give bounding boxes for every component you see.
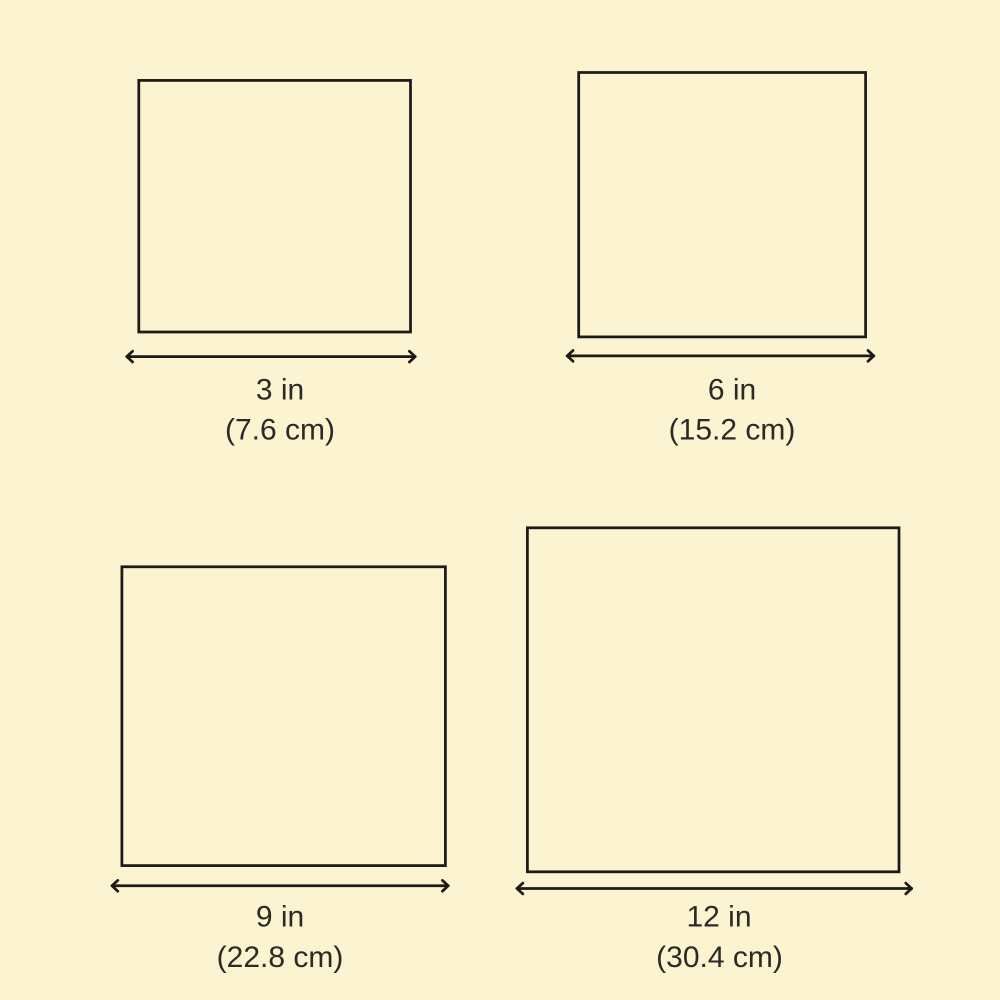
svg-text:6 in: 6 in [708,374,756,407]
svg-text:(15.2 cm): (15.2 cm) [669,414,796,447]
svg-text:(30.4 cm): (30.4 cm) [656,941,783,974]
svg-text:(7.6 cm): (7.6 cm) [225,414,335,447]
svg-text:12 in: 12 in [686,901,751,934]
svg-text:9 in: 9 in [256,901,304,934]
svg-text:3 in: 3 in [256,374,304,407]
svg-text:(22.8 cm): (22.8 cm) [217,941,344,974]
